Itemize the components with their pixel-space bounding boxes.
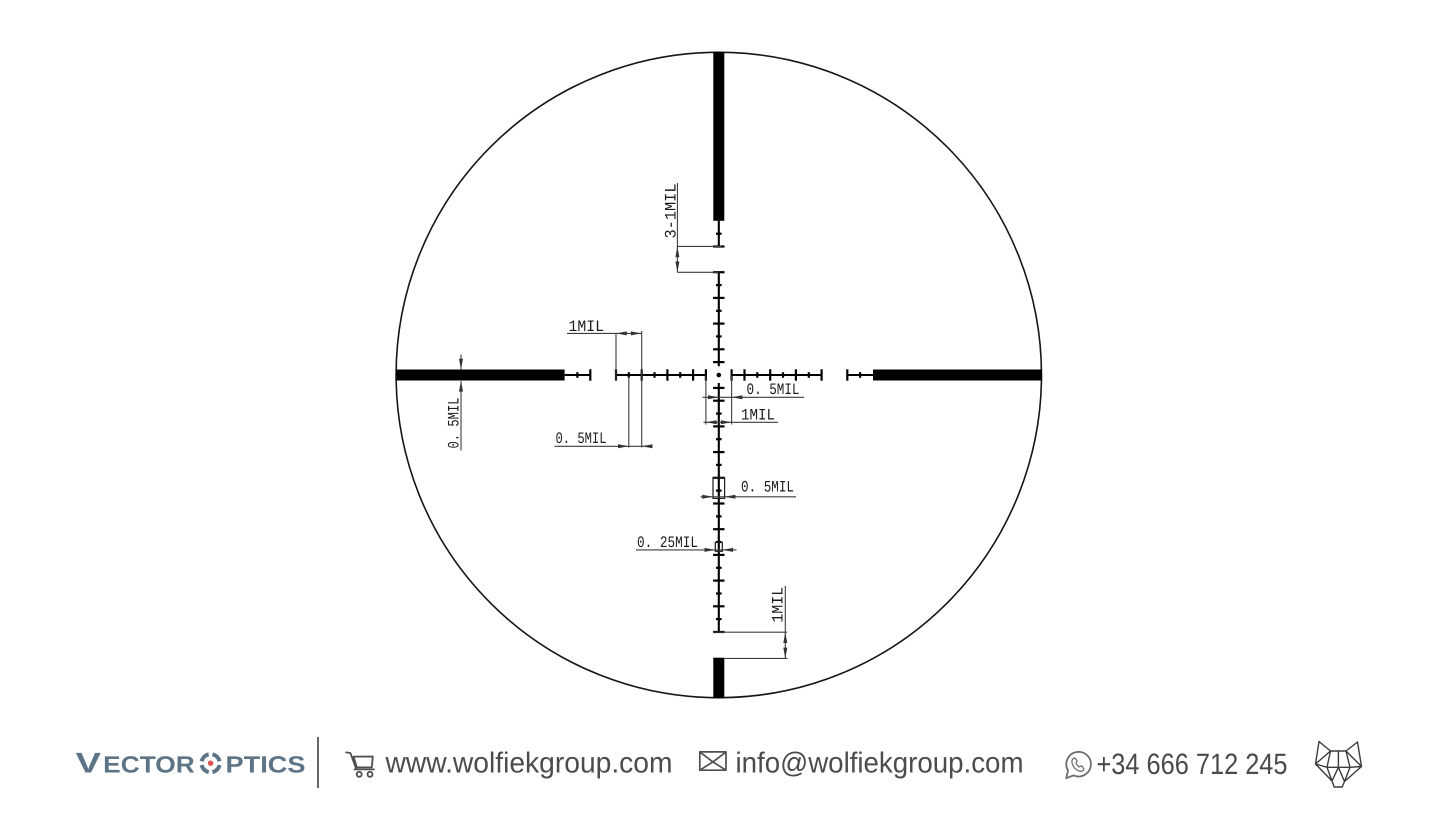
svg-text:0. 25MIL: 0. 25MIL: [637, 534, 698, 552]
svg-text:1MIL: 1MIL: [741, 406, 775, 424]
svg-text:0. 5MIL: 0. 5MIL: [741, 478, 794, 496]
svg-text:ECTOR: ECTOR: [103, 752, 195, 778]
svg-text:V: V: [76, 748, 102, 780]
svg-text:0. 5MIL: 0. 5MIL: [747, 381, 800, 399]
svg-text:1MIL: 1MIL: [769, 587, 787, 623]
svg-text:info@wolfiekgroup.com: info@wolfiekgroup.com: [736, 748, 1024, 780]
svg-text:PTICS: PTICS: [226, 752, 306, 778]
svg-text:0. 5MIL: 0. 5MIL: [556, 430, 607, 448]
svg-text:+34 666 712 245: +34 666 712 245: [1097, 748, 1288, 781]
svg-text:www.wolfiekgroup.com: www.wolfiekgroup.com: [385, 748, 673, 780]
